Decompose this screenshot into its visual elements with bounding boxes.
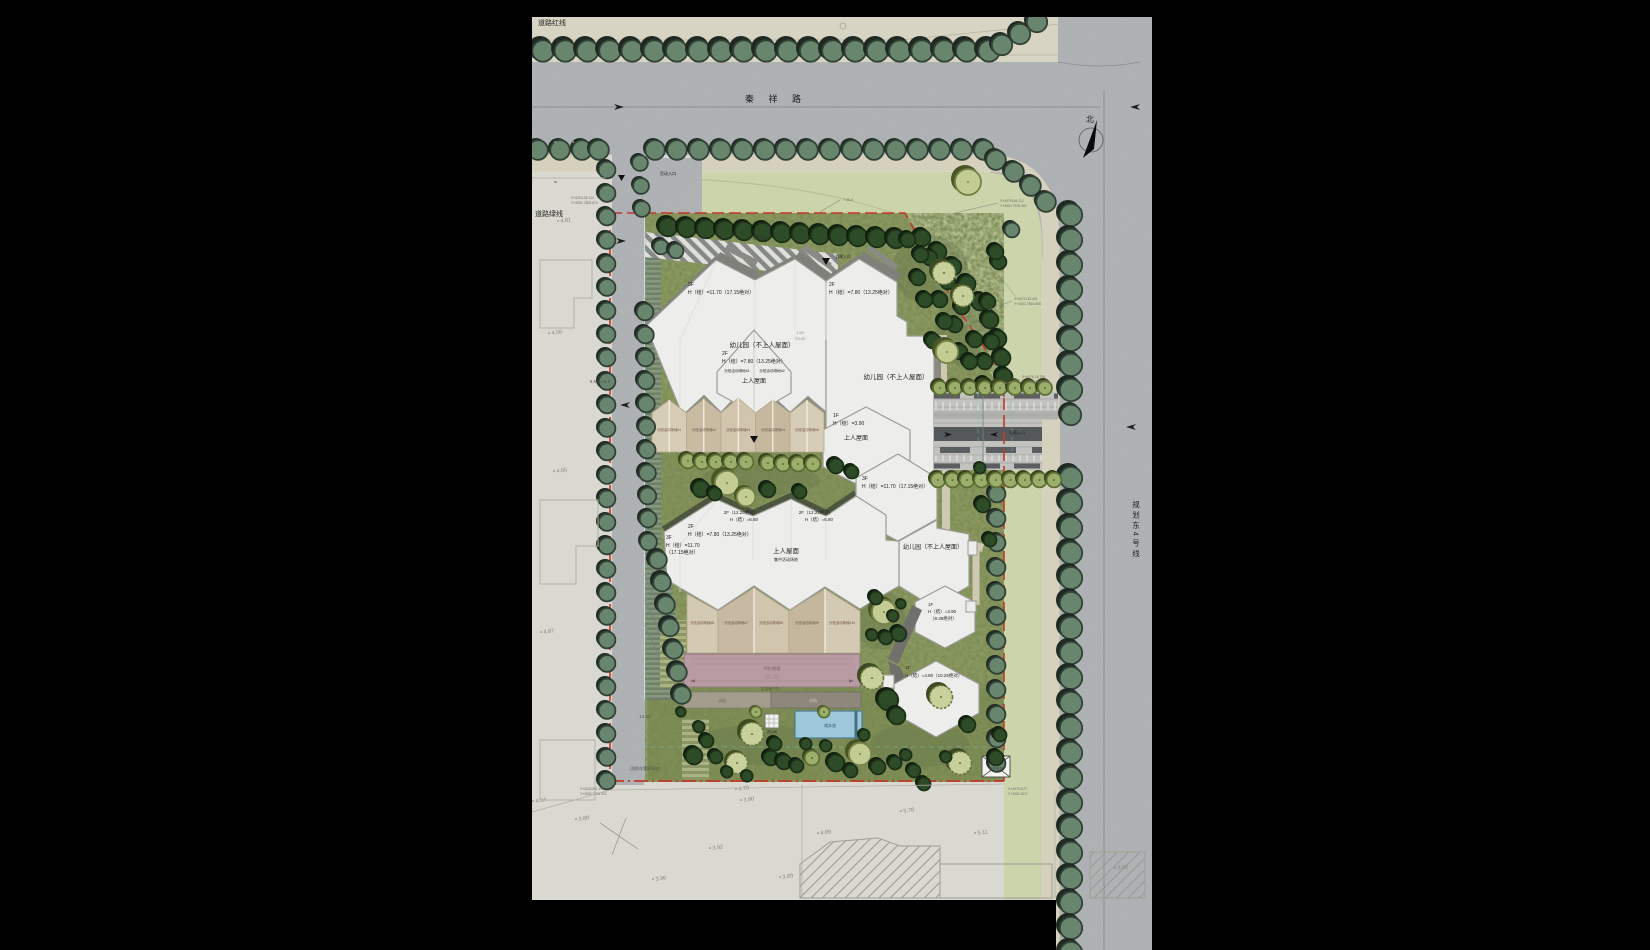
svg-text:2F（12.25绝对）: 2F（12.25绝对） [724, 509, 759, 515]
svg-text:H（结）=6.80: H（结）=6.80 [730, 516, 759, 523]
svg-text:管理用房: 管理用房 [752, 235, 767, 240]
svg-text:沙坑: 沙坑 [718, 697, 726, 703]
svg-text:分班活动场地#2: 分班活动场地#2 [759, 368, 785, 373]
svg-text:7.46.6: 7.46.6 [843, 198, 853, 202]
svg-text:分班活动场地#2: 分班活动场地#2 [692, 427, 716, 432]
svg-text:12.00: 12.00 [639, 714, 651, 719]
svg-text:车辆入口: 车辆入口 [1009, 429, 1025, 435]
svg-text:上人屋面: 上人屋面 [773, 546, 800, 555]
svg-text:H（结）=11.70: H（结）=11.70 [666, 542, 700, 549]
svg-text:分班活动场地#9: 分班活动场地#9 [795, 620, 819, 625]
svg-text:H（结）=6.80: H（结）=6.80 [805, 516, 834, 523]
svg-text:1.50: 1.50 [796, 330, 805, 335]
svg-text:H（结）=3.90: H（结）=3.90 [833, 420, 864, 427]
svg-text:5.50×15.6: 5.50×15.6 [590, 379, 611, 384]
svg-text:分班活动场地#8: 分班活动场地#8 [759, 620, 783, 625]
svg-text:▽0.00: ▽0.00 [795, 336, 807, 341]
svg-text:环形跑道: 环形跑道 [764, 665, 782, 672]
svg-text:分班活动场地#1: 分班活动场地#1 [724, 368, 750, 373]
svg-text:X+4071133.431: X+4071133.431 [1014, 297, 1038, 301]
svg-text:分班活动场地#5: 分班活动场地#5 [795, 427, 819, 432]
svg-text:X+4075.8.27: X+4075.8.27 [1008, 787, 1027, 791]
svg-text:集中活动场地: 集中活动场地 [774, 556, 798, 562]
svg-text:H（结）=7.80（13.25绝对）: H（结）=7.80（13.25绝对） [688, 531, 752, 538]
svg-text:3F: 3F [688, 282, 694, 288]
svg-text:上人屋面: 上人屋面 [742, 377, 766, 385]
svg-text:分班活动场地#7: 分班活动场地#7 [724, 620, 748, 625]
svg-text:Y+4052.7862.363: Y+4052.7862.363 [1022, 380, 1049, 384]
svg-text:幼儿园（不上人屋面）: 幼儿园（不上人屋面） [864, 372, 929, 381]
svg-text:2F: 2F [829, 282, 835, 288]
svg-text:H（结）=7.80（13.25绝对）: H（结）=7.80（13.25绝对） [722, 358, 786, 365]
svg-text:30.00: 30.00 [764, 675, 780, 681]
svg-text:分班活动场地#1: 分班活动场地#1 [657, 427, 681, 432]
svg-text:2F（12.25绝对）: 2F（12.25绝对） [799, 509, 834, 515]
svg-text:X+4075145.112: X+4075145.112 [1000, 199, 1024, 203]
svg-text:Y+4052.7908.321: Y+4052.7908.321 [580, 792, 607, 796]
svg-text:（消防车登高场地）: （消防车登高场地） [627, 765, 663, 771]
svg-text:分班活动场地#10: 分班活动场地#10 [829, 620, 855, 625]
svg-text:沙坑: 沙坑 [809, 697, 817, 703]
svg-text:幼儿园（不上人屋面）: 幼儿园（不上人屋面） [730, 340, 795, 349]
svg-text:秦 祥 路: 秦 祥 路 [745, 93, 807, 104]
svg-text:H（结）=7.80（13.25绝对）: H（结）=7.80（13.25绝对） [829, 289, 893, 296]
svg-text:X+4075.18.758: X+4075.18.758 [1022, 375, 1045, 379]
svg-text:管理入口: 管理入口 [835, 254, 850, 259]
svg-text:1F: 1F [928, 602, 934, 607]
svg-text:室外展场: 室外展场 [989, 766, 1004, 771]
svg-text:Y+4052.7578.387: Y+4052.7578.387 [1000, 204, 1027, 208]
svg-text:Y+4052.7860.566: Y+4052.7860.566 [1014, 302, 1041, 306]
svg-text:（9.35绝对）: （9.35绝对） [930, 615, 957, 621]
svg-text:道路绿线: 道路绿线 [535, 209, 563, 218]
svg-text:规划东4号线: 规划东4号线 [1131, 499, 1140, 560]
svg-text:H（结）=3.90: H（结）=3.90 [928, 608, 957, 615]
svg-text:X+4032060.193: X+4032060.193 [580, 787, 604, 791]
svg-text:3F: 3F [862, 476, 868, 482]
svg-text:2F: 2F [722, 351, 728, 357]
svg-text:戏水池: 戏水池 [824, 722, 836, 728]
svg-text:H（结）=4.80（10.25绝对）: H（结）=4.80（10.25绝对） [905, 672, 962, 679]
svg-text:X+4203.38.114: X+4203.38.114 [571, 196, 594, 200]
svg-text:北: 北 [1086, 115, 1094, 124]
svg-text:1F: 1F [833, 413, 839, 419]
svg-text:Y+4052.62.2: Y+4052.62.2 [1008, 792, 1027, 796]
svg-text:H（结）=11.70（17.15绝对）: H（结）=11.70（17.15绝对） [862, 483, 928, 490]
svg-text:活动入口: 活动入口 [660, 170, 677, 177]
svg-text:道路红线: 道路红线 [538, 18, 566, 27]
svg-text:（17.15绝对）: （17.15绝对） [666, 549, 699, 556]
svg-text:分班活动场地#6: 分班活动场地#6 [690, 620, 714, 625]
svg-text:Y+4052.7829.670: Y+4052.7829.670 [571, 201, 598, 205]
svg-text:H（结）=11.70（17.15绝对）: H（结）=11.70（17.15绝对） [688, 289, 754, 296]
svg-text:1F: 1F [905, 665, 911, 670]
svg-text:淋浴房: 淋浴房 [767, 729, 778, 734]
svg-text:3F: 3F [666, 535, 672, 541]
svg-text:分班活动场地#4: 分班活动场地#4 [761, 427, 785, 432]
svg-text:分班活动场地#3: 分班活动场地#3 [726, 427, 750, 432]
svg-text:上人屋面: 上人屋面 [844, 434, 868, 442]
svg-text:幼儿园（不上人屋面）: 幼儿园（不上人屋面） [903, 543, 963, 551]
svg-text:生态缓冲带: 生态缓冲带 [761, 686, 779, 691]
svg-text:2F: 2F [688, 524, 694, 530]
